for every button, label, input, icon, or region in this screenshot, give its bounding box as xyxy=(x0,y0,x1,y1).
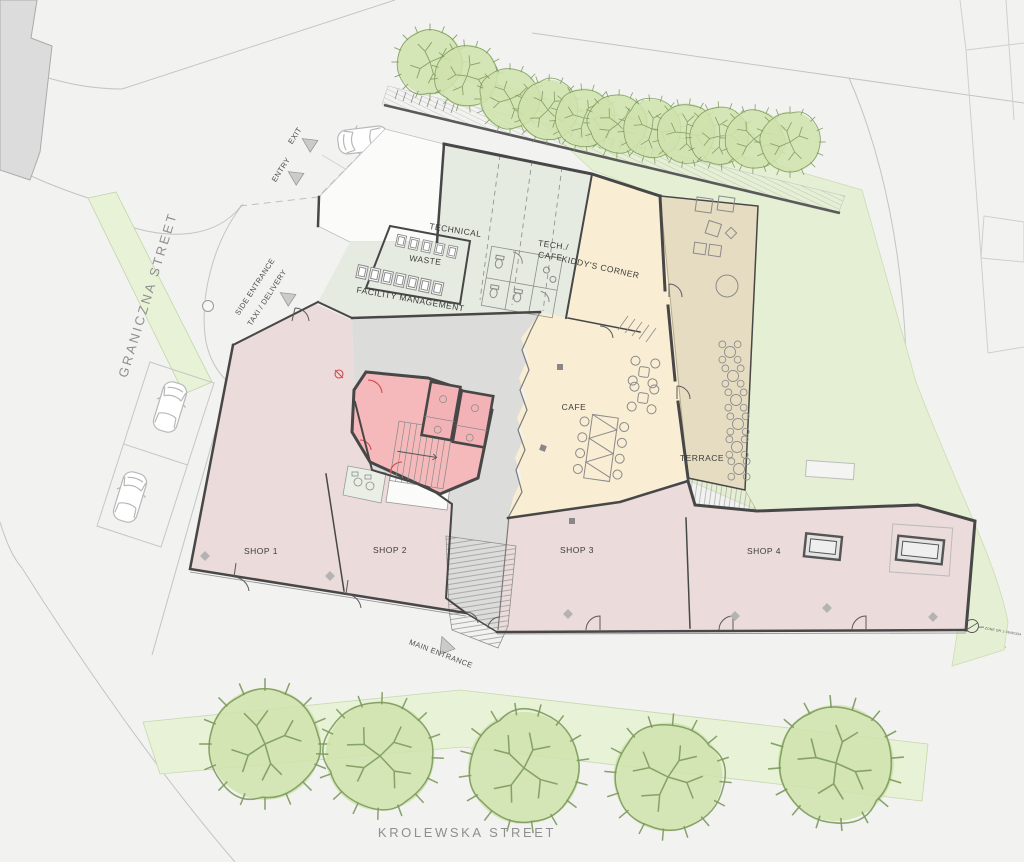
waste-bin-icon xyxy=(406,275,418,290)
utility-pad xyxy=(806,460,855,479)
waste-bin-icon xyxy=(381,270,393,285)
waste-bin-icon xyxy=(395,234,406,247)
label-terrace: TERRACE xyxy=(680,453,724,463)
site-plan-page: GRANICZNA STREET KROLEWSKA STREET EXIT E… xyxy=(0,0,1024,862)
waste-bin-icon xyxy=(431,281,443,296)
label-shop-4: SHOP 4 xyxy=(747,546,781,556)
skylight-inner xyxy=(809,539,836,555)
tree-icon xyxy=(199,678,331,810)
street-label-krolewska: KROLEWSKA STREET xyxy=(378,825,556,840)
waste-bin-icon xyxy=(447,245,458,258)
waste-bin-icon xyxy=(356,265,368,280)
site-plan-drawing: GRANICZNA STREET KROLEWSKA STREET EXIT E… xyxy=(0,0,1024,862)
waste-bin-icon xyxy=(419,278,431,293)
waste-bin-icon xyxy=(434,242,445,255)
column-marker xyxy=(569,518,575,524)
waste-bin-icon xyxy=(368,267,380,282)
label-cafe: CAFE xyxy=(562,402,587,412)
column-marker xyxy=(557,364,563,370)
bollard-icon xyxy=(203,301,214,312)
tree-icon xyxy=(754,106,825,177)
waste-bin-icon xyxy=(421,240,432,253)
label-shop-3: SHOP 3 xyxy=(560,545,594,555)
waste-bin-icon xyxy=(394,273,406,288)
waste-bin-icon xyxy=(408,237,419,250)
label-shop-1: SHOP 1 xyxy=(244,546,278,556)
label-shop-2: SHOP 2 xyxy=(373,545,407,555)
